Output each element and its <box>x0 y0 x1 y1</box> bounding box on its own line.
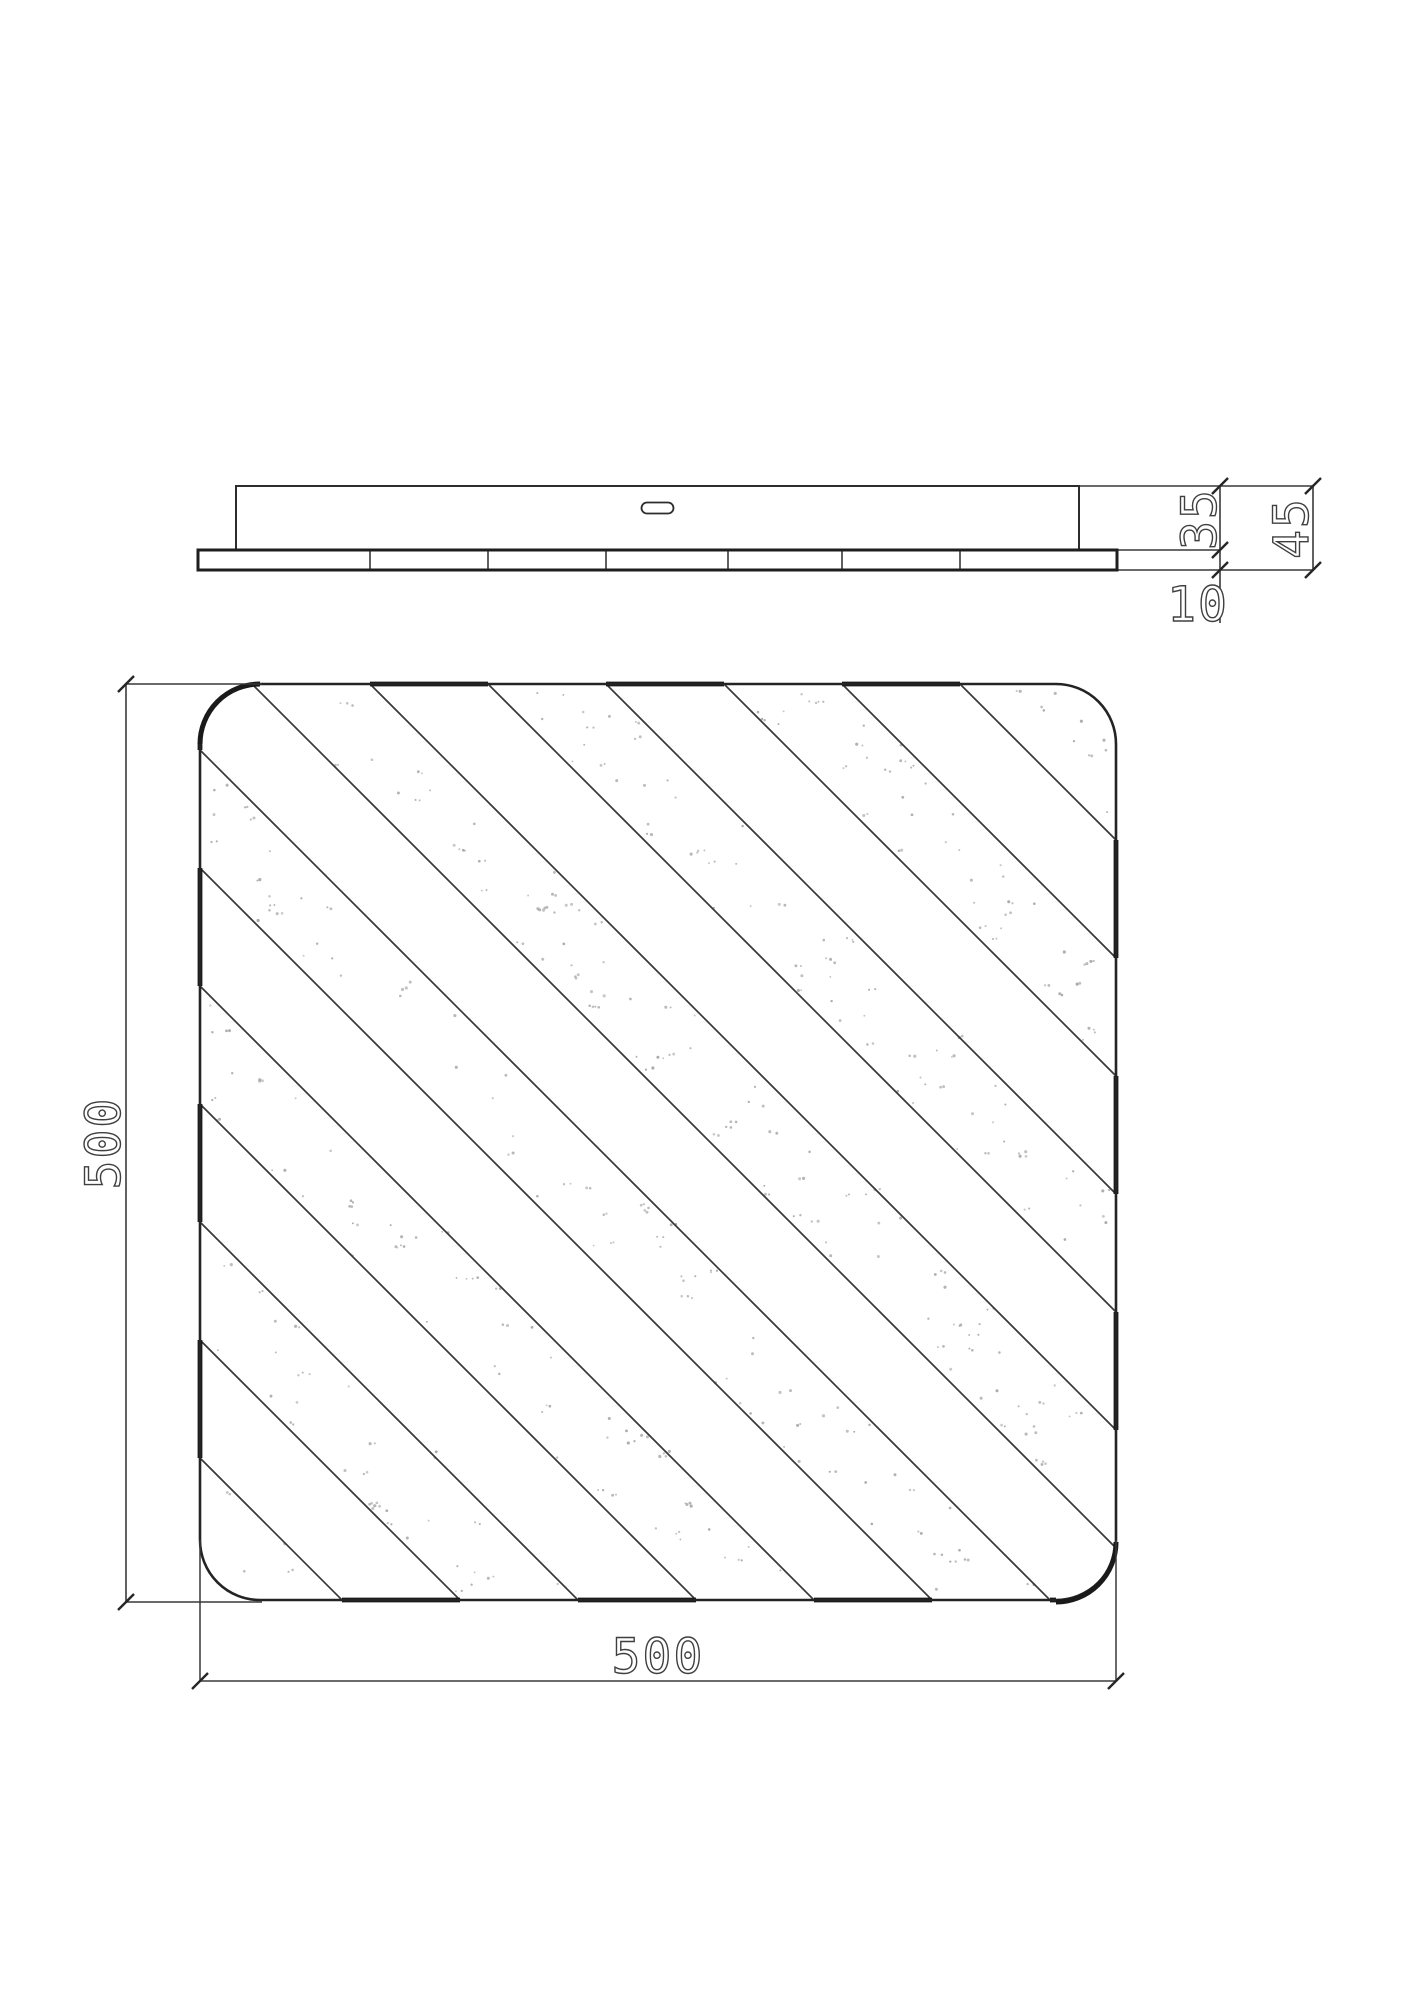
stipple-dot <box>973 902 975 904</box>
stipple-dot <box>640 1204 643 1207</box>
stipple-dots <box>209 690 1110 1593</box>
stipple-dot <box>329 1150 332 1153</box>
stipple-dot <box>297 1374 299 1376</box>
stipple-dot <box>269 850 271 852</box>
stipple-dot <box>243 1570 246 1573</box>
stipple-dot <box>904 760 906 762</box>
stipple-dot <box>371 1507 374 1510</box>
stipple-dot <box>473 823 476 826</box>
stipple-dot <box>527 895 529 897</box>
stipple-dot <box>283 1169 286 1172</box>
stipple-dot <box>971 1349 974 1352</box>
stipple-dot <box>340 974 342 976</box>
stipple-dot <box>298 1326 300 1328</box>
stipple-dot <box>261 1079 264 1082</box>
stipple-dot <box>409 981 412 984</box>
stipple-dot <box>761 1421 764 1424</box>
stipple-dot <box>429 789 431 791</box>
stipple-dot <box>708 862 710 864</box>
stipple-dot <box>453 1014 456 1017</box>
stipple-dot <box>466 1278 468 1280</box>
stipple-dot <box>478 860 481 863</box>
stipple-dot <box>899 759 902 762</box>
hatch-line <box>140 1398 1176 2000</box>
stipple-dot <box>594 923 597 926</box>
stipple-dot <box>590 990 593 993</box>
stipple-dot <box>563 1183 565 1185</box>
stipple-dot <box>615 779 618 782</box>
stipple-dot <box>735 1121 738 1124</box>
stipple-dot <box>763 1185 765 1187</box>
stipple-dot <box>678 1531 680 1533</box>
stipple-dot <box>390 1523 392 1525</box>
stipple-dot <box>512 1151 515 1154</box>
stipple-dot <box>866 813 868 815</box>
stipple-dot <box>680 1275 682 1277</box>
stipple-dot <box>256 880 258 882</box>
stipple-dot <box>371 758 374 761</box>
stipple-dot <box>979 926 982 929</box>
stipple-dot <box>690 1505 693 1508</box>
stipple-dot <box>808 1151 811 1154</box>
stipple-dot <box>1093 1029 1095 1031</box>
stipple-dot <box>992 938 994 940</box>
stipple-dot <box>646 1211 649 1214</box>
stipple-dot <box>862 814 865 817</box>
stipple-dot <box>968 1348 970 1350</box>
stipple-dot <box>710 1270 712 1272</box>
stipple-dot <box>461 1590 463 1592</box>
stipple-dot <box>1004 1104 1006 1106</box>
stipple-dot <box>665 1455 668 1458</box>
stipple-dot <box>281 912 284 915</box>
hatch-line <box>140 926 1176 1962</box>
stipple-dot <box>647 1207 650 1210</box>
stipple-dot <box>583 744 585 746</box>
stipple-dot <box>487 1577 490 1580</box>
stipple-dot <box>268 909 271 912</box>
stipple-dot <box>830 1000 832 1002</box>
stipple-dot <box>570 1183 572 1185</box>
stipple-dot <box>352 1201 354 1203</box>
stipple-dot <box>495 1287 497 1289</box>
dim-label-10: 10 <box>1167 577 1229 633</box>
stipple-dot <box>920 1077 922 1079</box>
stipple-dot <box>302 1372 304 1374</box>
stipple-dot <box>1019 690 1022 693</box>
stipple-dot <box>1017 1405 1019 1407</box>
stipple-dot <box>1069 1415 1071 1417</box>
hatch-line <box>140 1162 1176 2000</box>
stipple-dot <box>703 849 705 851</box>
stipple-dot <box>1019 1155 1022 1158</box>
stipple-dot <box>400 1245 402 1247</box>
stipple-dot <box>889 770 891 772</box>
stipple-dot <box>968 1334 970 1336</box>
stipple-dot <box>959 1324 962 1327</box>
stipple-dot <box>799 1423 801 1425</box>
stipple-dot <box>1044 984 1046 986</box>
dim-label-45: 45 <box>1264 497 1320 559</box>
stipple-dot <box>287 1571 289 1573</box>
stipple-dot <box>899 1217 902 1220</box>
stipple-dot <box>385 1509 388 1512</box>
stipple-dot <box>951 1056 953 1058</box>
stipple-dot <box>257 919 260 922</box>
stipple-dot <box>934 1273 937 1276</box>
stipple-dot <box>603 1213 606 1216</box>
stipple-dot <box>741 1559 743 1561</box>
stipple-dot <box>1106 811 1108 813</box>
stipple-dot <box>290 1421 293 1424</box>
stipple-dot <box>585 1186 588 1189</box>
stipple-dot <box>470 1584 472 1586</box>
stipple-dot <box>211 1099 213 1101</box>
side-plate-body <box>236 486 1079 550</box>
stipple-dot <box>441 1231 443 1233</box>
stipple-dot <box>958 1549 961 1552</box>
stipple-dot <box>874 988 876 990</box>
stipple-dot <box>898 850 901 853</box>
stipple-dot <box>1063 950 1066 953</box>
stipple-dot <box>1040 706 1043 709</box>
stipple-dot <box>228 1029 231 1032</box>
stipple-dot <box>600 764 603 767</box>
stipple-dot <box>730 1126 733 1129</box>
stipple-dot <box>752 1337 754 1339</box>
stipple-dot <box>606 1436 608 1438</box>
stipple-dot <box>971 1112 974 1115</box>
stipple-dot <box>866 1043 868 1045</box>
dim-label-35: 35 <box>1172 488 1228 550</box>
stipple-dot <box>778 903 781 906</box>
stipple-dot <box>611 1494 614 1497</box>
stipple-dot <box>351 704 354 707</box>
cad-drawing: 35 45 10 500 500 <box>0 0 1414 2000</box>
dim-label-width-500: 500 <box>612 1629 705 1685</box>
stipple-dot <box>603 994 606 997</box>
stipple-dot <box>945 841 947 843</box>
stipple-dot <box>687 1295 689 1297</box>
stipple-dot <box>662 1236 664 1238</box>
stipple-dot <box>1094 1031 1096 1033</box>
stipple-dot <box>664 1006 667 1009</box>
stipple-dot <box>562 943 565 946</box>
stipple-dot <box>763 719 765 721</box>
stipple-dot <box>684 1502 686 1504</box>
stipple-dot <box>868 1424 870 1426</box>
stipple-dot <box>612 1241 614 1243</box>
stipple-dot <box>366 1471 369 1474</box>
stipple-dot <box>375 1505 377 1507</box>
stipple-dot <box>667 779 669 781</box>
stipple-dot <box>399 995 402 998</box>
stipple-dot <box>845 765 847 767</box>
stipple-dot <box>846 1430 849 1433</box>
stipple-dot <box>507 1153 509 1155</box>
stipple-dot <box>992 1121 994 1123</box>
stipple-dot <box>415 1236 418 1239</box>
stipple-dot <box>829 1471 831 1473</box>
stipple-dot <box>479 1523 481 1525</box>
stipple-dot <box>800 965 802 967</box>
stipple-dot <box>592 1005 595 1008</box>
stipple-dot <box>842 767 844 769</box>
stipple-dot <box>646 1435 649 1438</box>
stipple-dot <box>378 1505 381 1508</box>
stipple-dot <box>1087 1027 1090 1030</box>
stipple-dot <box>680 1539 682 1541</box>
stipple-dot <box>271 1169 273 1171</box>
stipple-dot <box>456 1277 458 1279</box>
stipple-dot <box>309 1373 311 1375</box>
stipple-dot <box>1102 739 1105 742</box>
stipple-dot <box>250 819 252 821</box>
stipple-dot <box>556 1583 558 1585</box>
stipple-dot <box>713 1133 716 1136</box>
stipple-dot <box>262 1290 264 1292</box>
stipple-dot <box>662 1057 664 1059</box>
stipple-dot <box>818 701 820 703</box>
stipple-dot <box>987 1309 989 1311</box>
stipple-dot <box>376 1502 379 1505</box>
stipple-dot <box>536 907 539 910</box>
top-view: 500 500 <box>76 0 1176 2000</box>
stipple-dot <box>646 833 648 835</box>
stipple-dot <box>1079 1204 1081 1206</box>
stipple-dot <box>1011 902 1013 904</box>
stipple-dot <box>1025 1155 1028 1158</box>
stipple-dot <box>570 903 573 906</box>
stipple-dot <box>910 767 912 769</box>
stipple-dot <box>894 1473 897 1476</box>
stipple-dot <box>545 906 548 909</box>
stipple-dot <box>1088 754 1090 756</box>
stipple-dot <box>855 743 858 746</box>
stipple-dot <box>670 1223 673 1226</box>
stipple-dot <box>1053 1384 1055 1386</box>
stipple-dot <box>455 1590 457 1592</box>
stipple-dot <box>977 1334 979 1336</box>
stipple-dot <box>884 769 886 771</box>
stipple-dot <box>958 849 960 851</box>
stipple-dot <box>303 955 305 957</box>
stipple-dot <box>798 1460 801 1463</box>
stipple-dot <box>800 693 802 695</box>
stipple-dot <box>213 813 216 816</box>
stipple-dot <box>949 1560 951 1562</box>
stipple-dot <box>210 841 212 843</box>
stipple-dot <box>924 1083 926 1085</box>
stipple-dot <box>640 1434 643 1437</box>
stipple-dot <box>900 849 903 852</box>
stipple-dot <box>636 1056 638 1058</box>
stipple-dot <box>602 961 604 963</box>
stipple-dot <box>213 789 215 791</box>
stipple-dot <box>268 895 271 898</box>
stipple-dot <box>1042 1403 1044 1405</box>
stipple-dot <box>845 1195 847 1197</box>
stipple-dot <box>1090 754 1093 757</box>
stipple-dot <box>1054 692 1057 695</box>
stipple-dot <box>634 738 636 740</box>
stipple-dot <box>346 702 349 705</box>
stipple-dot <box>717 1134 720 1137</box>
stipple-dot <box>516 941 518 943</box>
stipple-dot <box>645 1069 647 1071</box>
stipple-dot <box>553 871 556 874</box>
stipple-dot <box>714 861 716 863</box>
stipple-dot <box>987 1152 990 1155</box>
hatch-line <box>140 572 1176 1608</box>
stipple-dot <box>218 1118 221 1121</box>
stipple-dot <box>808 700 810 702</box>
stipple-dot <box>229 1493 231 1495</box>
stipple-dot <box>741 825 743 827</box>
stipple-dot <box>417 770 420 773</box>
stipple-dot <box>1064 1238 1067 1241</box>
stipple-dot <box>582 711 585 714</box>
stipple-dot <box>316 943 318 945</box>
slot-hole <box>642 503 674 514</box>
stipple-dot <box>374 1442 376 1444</box>
stipple-dot <box>913 1055 916 1058</box>
corner-arc-bottom-right <box>1056 1542 1116 1602</box>
stipple-dot <box>258 878 261 881</box>
stipple-dot <box>879 1188 881 1190</box>
stipple-dot <box>217 1349 219 1351</box>
stipple-dot <box>797 989 800 992</box>
stipple-dot <box>1003 1141 1005 1143</box>
stipple-dot <box>506 1324 509 1327</box>
stipple-dot <box>586 726 588 728</box>
drawing-page: 35 45 10 500 500 <box>0 0 1414 2000</box>
stipple-dot <box>536 1195 539 1198</box>
stipple-dot <box>1033 1425 1036 1428</box>
stipple-dot <box>691 1297 693 1299</box>
stipple-dot <box>949 1368 952 1371</box>
stipple-dot <box>908 1055 911 1058</box>
stipple-dot <box>783 904 786 907</box>
stipple-dot <box>498 1373 501 1376</box>
stipple-dot <box>458 848 460 850</box>
stipple-dot <box>798 1177 801 1180</box>
stipple-dot <box>656 1236 658 1238</box>
stipple-dot <box>829 958 832 961</box>
stipple-dot <box>815 702 818 705</box>
stipple-dot <box>751 1352 754 1355</box>
stipple-dot <box>1004 1425 1006 1427</box>
hatch-line <box>140 690 1176 1726</box>
stipple-dot <box>296 1401 299 1404</box>
stipple-dot <box>1000 864 1002 866</box>
stipple-dot <box>909 1489 911 1491</box>
stipple-dot <box>716 1270 718 1272</box>
stipple-dot <box>1082 1039 1084 1041</box>
stipple-dot <box>565 904 568 907</box>
stipple-dot <box>872 1042 875 1045</box>
stipple-dot <box>1000 927 1002 929</box>
stipple-dot <box>954 1560 956 1562</box>
stipple-dot <box>592 726 594 728</box>
stipple-dot <box>1105 749 1108 752</box>
stipple-dot <box>605 1213 607 1215</box>
stipple-dot <box>912 1102 914 1104</box>
stipple-dot <box>226 784 229 787</box>
stipple-dot <box>455 1066 458 1069</box>
stipple-dot <box>1009 911 1012 914</box>
stipple-dot <box>216 840 218 842</box>
stipple-dot <box>571 760 573 762</box>
stipple-dot <box>1002 875 1004 877</box>
stipple-dot <box>209 1004 211 1006</box>
stipple-dot <box>292 1423 294 1425</box>
stipple-dot <box>659 1246 661 1248</box>
stipple-dot <box>1043 709 1046 712</box>
stipple-dot <box>949 1507 952 1510</box>
stipple-dot <box>708 1528 711 1531</box>
stipple-dot <box>643 1203 645 1205</box>
stipple-dot <box>725 1126 727 1128</box>
stipple-dot <box>853 1431 855 1433</box>
stipple-dot <box>789 1389 792 1392</box>
stipple-dot <box>1080 1412 1083 1415</box>
stipple-dot <box>799 1214 801 1216</box>
stipple-dot <box>387 1522 389 1524</box>
stipple-dot <box>953 1324 955 1326</box>
stipple-dot <box>1042 1460 1045 1463</box>
stipple-dot <box>779 1569 781 1571</box>
stipple-dot <box>851 939 853 941</box>
stipple-dot <box>663 1452 665 1454</box>
stipple-dot <box>536 692 538 694</box>
stipple-dot <box>690 853 693 856</box>
stipple-dot <box>421 772 423 774</box>
stipple-dot <box>597 1489 599 1491</box>
stipple-dot <box>363 1473 365 1475</box>
stipple-dot <box>823 939 826 942</box>
stipple-dot <box>696 851 698 853</box>
stipple-dot <box>643 1209 646 1212</box>
stipple-dot <box>870 1523 873 1526</box>
stipple-dot <box>1093 960 1095 962</box>
stipple-dot <box>942 1345 945 1348</box>
stipple-dot <box>570 964 572 966</box>
stipple-dot <box>1104 1221 1107 1224</box>
stipple-dot <box>729 1120 732 1123</box>
stipple-dot <box>748 1101 750 1103</box>
stipple-dot <box>940 1270 943 1273</box>
stipple-dot <box>952 813 955 816</box>
stipple-dot <box>748 1546 750 1548</box>
stipple-dot <box>778 1391 781 1394</box>
stipple-dot <box>768 1130 771 1133</box>
stipple-dot <box>783 1446 785 1448</box>
stipple-dot <box>273 904 275 906</box>
stipple-dot <box>223 1265 225 1267</box>
stipple-dot <box>865 1193 867 1195</box>
stipple-dot <box>833 961 836 964</box>
stipple-dot <box>270 1395 273 1398</box>
stipple-dot <box>453 844 456 847</box>
stipple-dot <box>670 1006 672 1008</box>
stipple-dot <box>343 1469 346 1472</box>
stipple-dot <box>401 988 404 991</box>
stipple-dot <box>502 1323 505 1326</box>
stipple-dot <box>811 1220 813 1222</box>
stipple-dot <box>1047 984 1050 987</box>
stipple-dot <box>762 1105 765 1108</box>
